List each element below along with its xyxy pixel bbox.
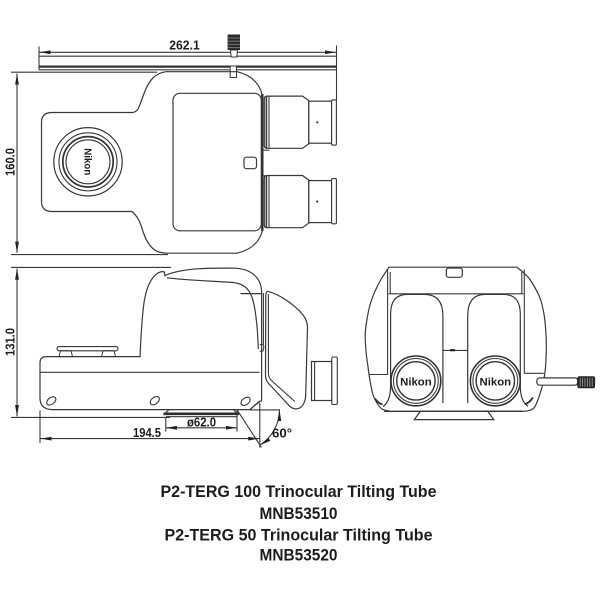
svg-text:MNB53510: MNB53510 (260, 505, 338, 523)
svg-text:262.1: 262.1 (169, 38, 200, 53)
svg-text:194.5: 194.5 (133, 426, 161, 440)
svg-text:P2-TERG 50 Trinocular Tilting: P2-TERG 50 Trinocular Tilting Tube (165, 526, 433, 544)
svg-text:P2-TERG 100 Trinocular Tilting: P2-TERG 100 Trinocular Tilting Tube (161, 483, 437, 501)
svg-text:131.0: 131.0 (3, 328, 18, 356)
svg-text:Nikon: Nikon (480, 376, 512, 388)
svg-text:Nikon: Nikon (400, 376, 432, 388)
svg-text:160.0: 160.0 (3, 148, 18, 176)
svg-text:60°: 60° (272, 426, 292, 441)
svg-text:ø62.0: ø62.0 (187, 415, 216, 429)
svg-text:Nikon: Nikon (82, 148, 93, 175)
svg-text:MNB53520: MNB53520 (260, 546, 338, 564)
